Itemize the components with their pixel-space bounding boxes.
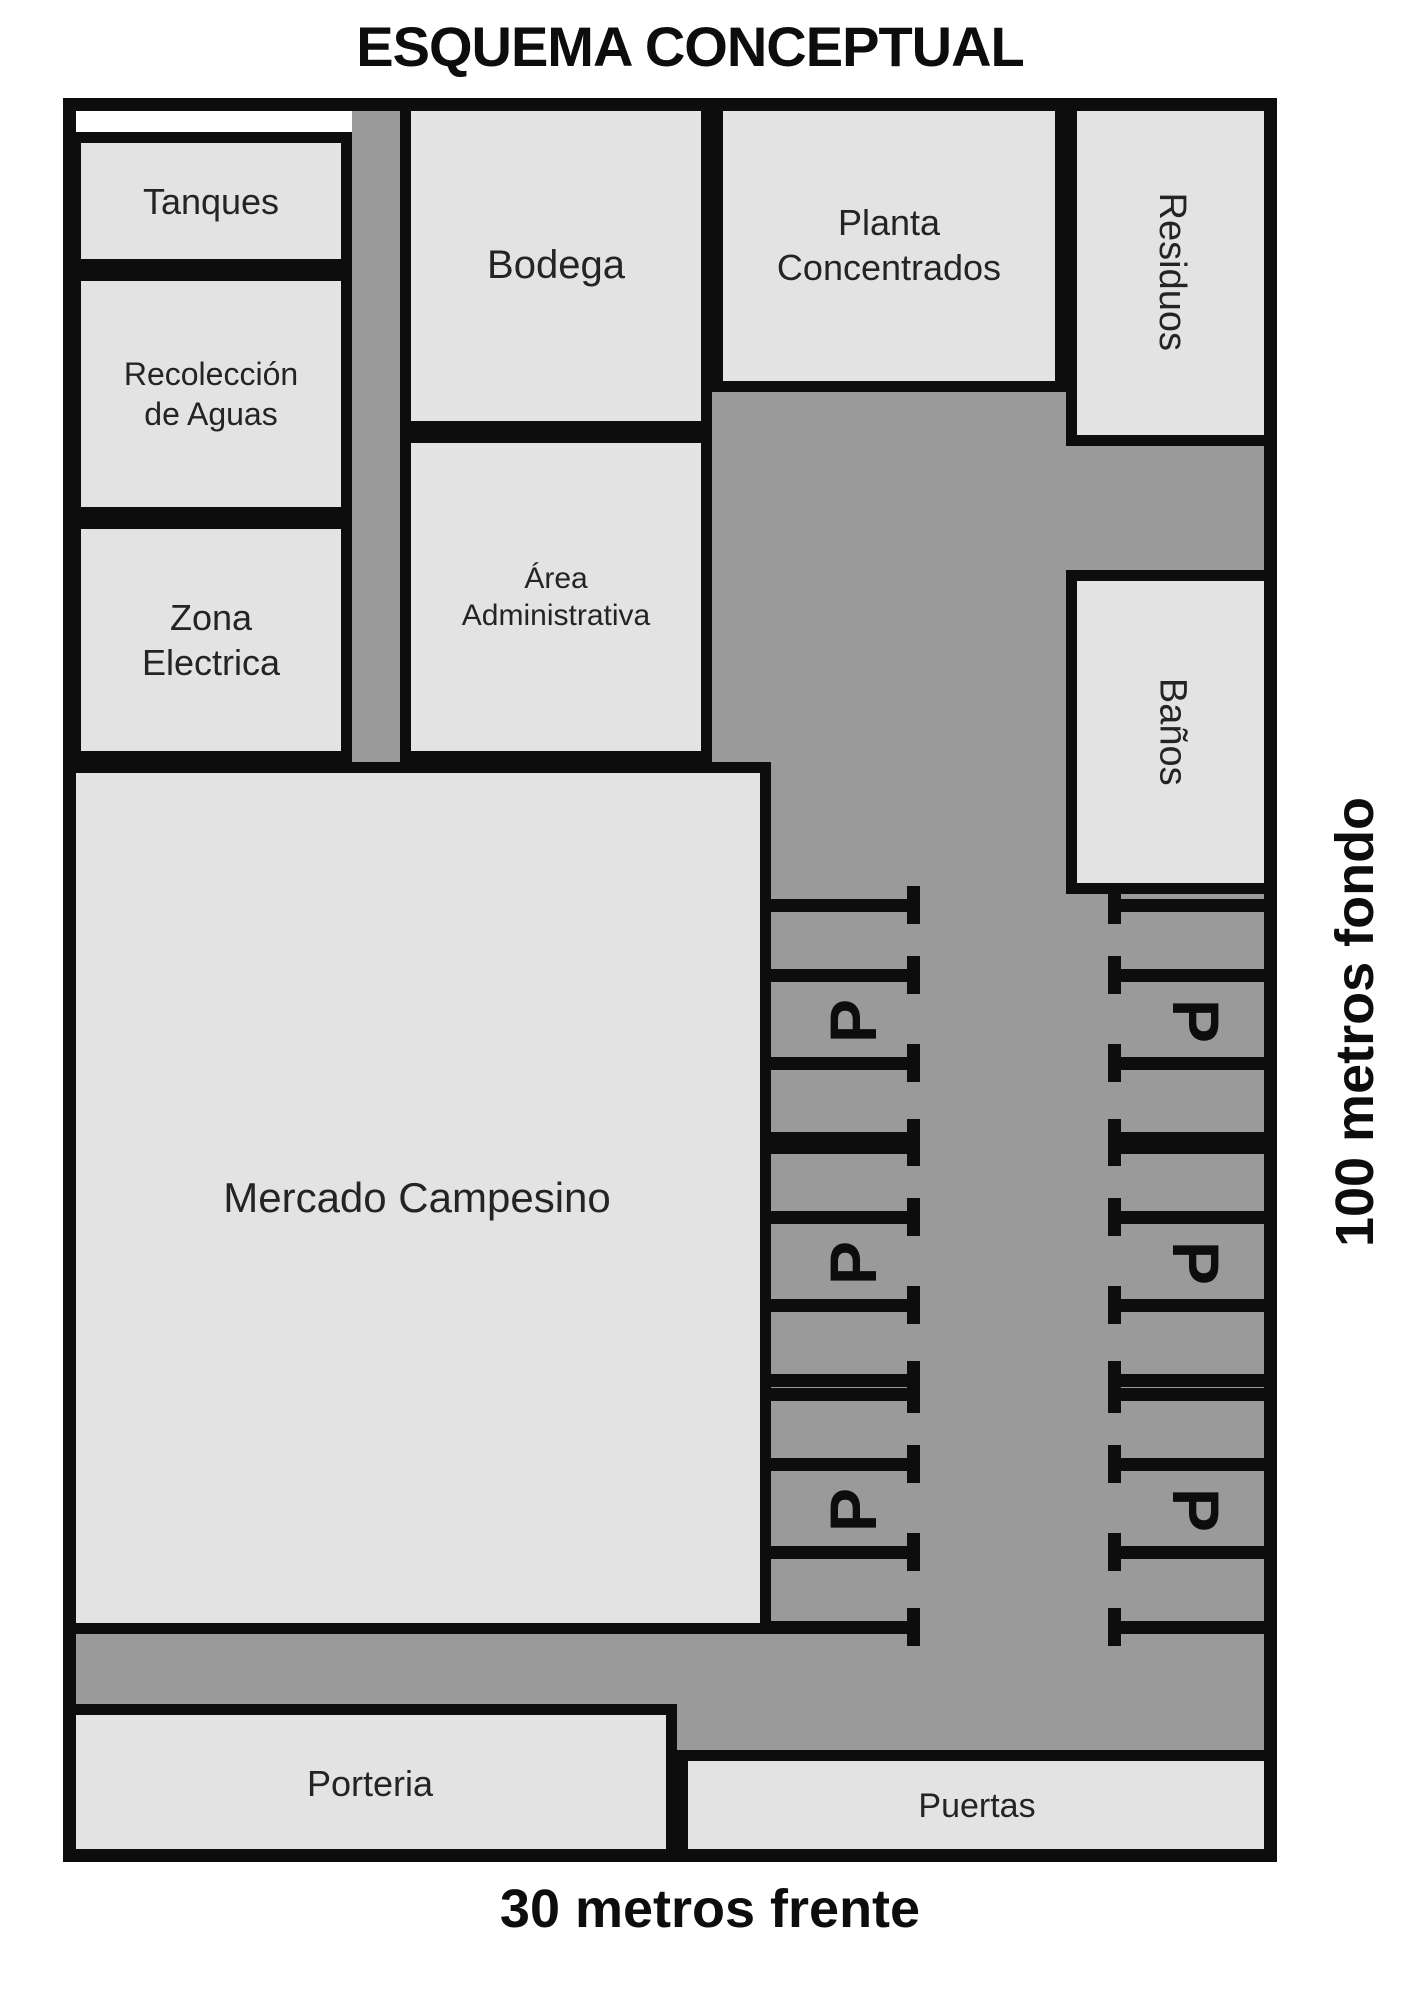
parking-stall-end-tick xyxy=(1108,1044,1121,1082)
room-bodega: Bodega xyxy=(400,98,712,432)
parking-p-label: P xyxy=(1163,1241,1229,1285)
room-puertas-label: Puertas xyxy=(918,1785,1035,1828)
room-residuos-label: Residuos xyxy=(1148,193,1196,351)
room-mercado-campesino-label: Mercado Campesino xyxy=(223,1172,611,1225)
room-planta-concentrados-label: Planta Concentrados xyxy=(749,200,1029,290)
parking-stall-end-tick xyxy=(907,1375,920,1413)
parking-stall-end-tick xyxy=(907,1286,920,1324)
parking-stall-line xyxy=(771,1458,920,1471)
parking-stall-line xyxy=(771,1388,920,1401)
room-banos: Baños xyxy=(1066,570,1277,894)
esquema-conceptual-diagram: ESQUEMA CONCEPTUAL Tanques Recolección d… xyxy=(0,0,1414,2000)
parking-stall-line xyxy=(1108,1374,1264,1387)
parking-stall-end-tick xyxy=(1108,1375,1121,1413)
parking-stall-line xyxy=(1108,969,1264,982)
room-mercado-campesino: Mercado Campesino xyxy=(63,762,771,1634)
parking-stall-line xyxy=(1108,1299,1264,1312)
parking-stall-end-tick xyxy=(907,956,920,994)
road-strip-left xyxy=(352,111,400,762)
parking-stall-end-tick xyxy=(907,1128,920,1166)
parking-stall-line xyxy=(771,1374,920,1387)
parking-stall-line xyxy=(771,1299,920,1312)
parking-stall-line xyxy=(1108,1211,1264,1224)
room-bodega-label: Bodega xyxy=(487,240,625,290)
parking-stall-end-tick xyxy=(907,886,920,924)
parking-stall-line xyxy=(771,1141,920,1154)
room-tanques: Tanques xyxy=(70,132,352,270)
room-area-administrativa-label: Área Administrativa xyxy=(446,560,666,635)
diagram-title: ESQUEMA CONCEPTUAL xyxy=(0,14,1380,79)
parking-stall-end-tick xyxy=(1108,1445,1121,1483)
parking-stall-end-tick xyxy=(907,1608,920,1646)
parking-stall-line xyxy=(771,969,920,982)
parking-stall-line xyxy=(771,1211,920,1224)
parking-stall-line xyxy=(1108,1388,1264,1401)
parking-stall-line xyxy=(771,899,920,912)
parking-p-label: P xyxy=(820,999,886,1043)
room-recoleccion-label: Recolección de Aguas xyxy=(106,354,316,434)
room-tanques-label: Tanques xyxy=(143,179,279,224)
room-area-administrativa: Área Administrativa xyxy=(400,432,712,762)
parking-stall-end-tick xyxy=(907,1198,920,1236)
dimension-front-label: 30 metros frente xyxy=(0,1878,1414,1940)
parking-stall-line xyxy=(771,1621,920,1634)
room-zona-electrica: Zona Electrica xyxy=(70,518,352,762)
parking-p-label: P xyxy=(820,1488,886,1532)
room-residuos: Residuos xyxy=(1066,98,1277,446)
parking-stall-end-tick xyxy=(907,1533,920,1571)
parking-stall-line xyxy=(1108,1057,1264,1070)
parking-stall-line xyxy=(1108,1546,1264,1559)
room-zona-electrica-label: Zona Electrica xyxy=(121,595,301,685)
room-recoleccion-de-aguas: Recolección de Aguas xyxy=(70,270,352,518)
parking-stall-line xyxy=(771,1057,920,1070)
parking-stall-line xyxy=(1108,1621,1264,1634)
parking-stall-end-tick xyxy=(1108,886,1121,924)
parking-stall-end-tick xyxy=(907,1445,920,1483)
parking-stall-line xyxy=(1108,899,1264,912)
parking-stall-line xyxy=(771,1546,920,1559)
room-porteria-label: Porteria xyxy=(307,1761,433,1806)
parking-stall-line xyxy=(1108,1141,1264,1154)
parking-stall-end-tick xyxy=(907,1044,920,1082)
parking-stall-end-tick xyxy=(1108,1286,1121,1324)
parking-stall-end-tick xyxy=(1108,956,1121,994)
parking-p-label: P xyxy=(1163,999,1229,1043)
parking-stall-end-tick xyxy=(1108,1608,1121,1646)
room-banos-label: Baños xyxy=(1148,678,1196,786)
parking-stall-end-tick xyxy=(1108,1533,1121,1571)
dimension-depth-label: 100 metros fondo xyxy=(1324,797,1386,1247)
parking-stall-end-tick xyxy=(1108,1198,1121,1236)
room-puertas: Puertas xyxy=(677,1750,1277,1862)
parking-p-label: P xyxy=(820,1241,886,1285)
parking-stall-line xyxy=(1108,1458,1264,1471)
room-planta-concentrados: Planta Concentrados xyxy=(712,98,1066,392)
parking-p-label: P xyxy=(1163,1488,1229,1532)
parking-stall-end-tick xyxy=(1108,1128,1121,1166)
room-porteria: Porteria xyxy=(63,1704,677,1862)
